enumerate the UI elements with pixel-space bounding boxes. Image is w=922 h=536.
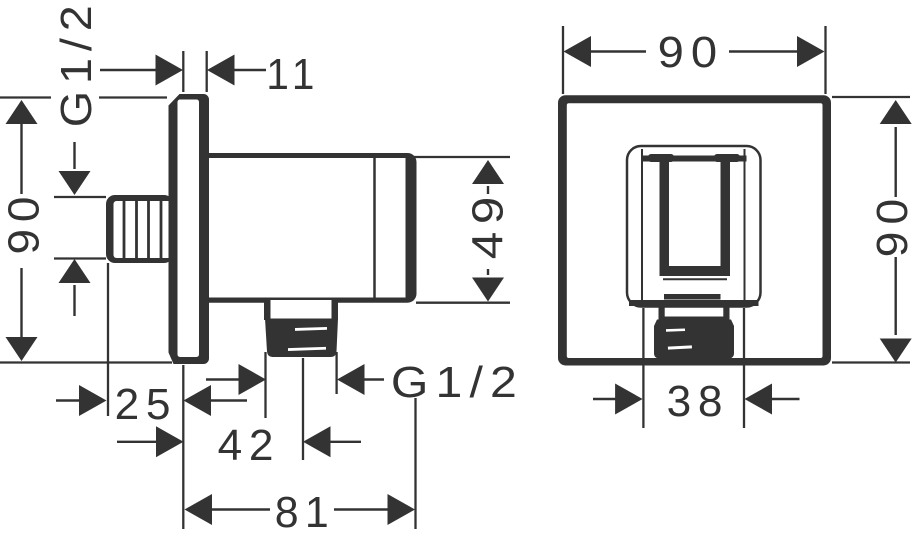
svg-text:25: 25 (115, 380, 177, 429)
svg-text:G1/2: G1/2 (52, 0, 101, 127)
svg-text:49: 49 (464, 189, 513, 259)
svg-text:G1/2: G1/2 (391, 358, 524, 407)
svg-text:11: 11 (266, 50, 320, 99)
svg-text:90: 90 (658, 28, 725, 77)
svg-text:90: 90 (868, 192, 917, 258)
svg-text:38: 38 (667, 377, 729, 426)
svg-text:42: 42 (218, 421, 280, 470)
svg-text:81: 81 (275, 488, 335, 536)
svg-text:90: 90 (0, 190, 49, 255)
